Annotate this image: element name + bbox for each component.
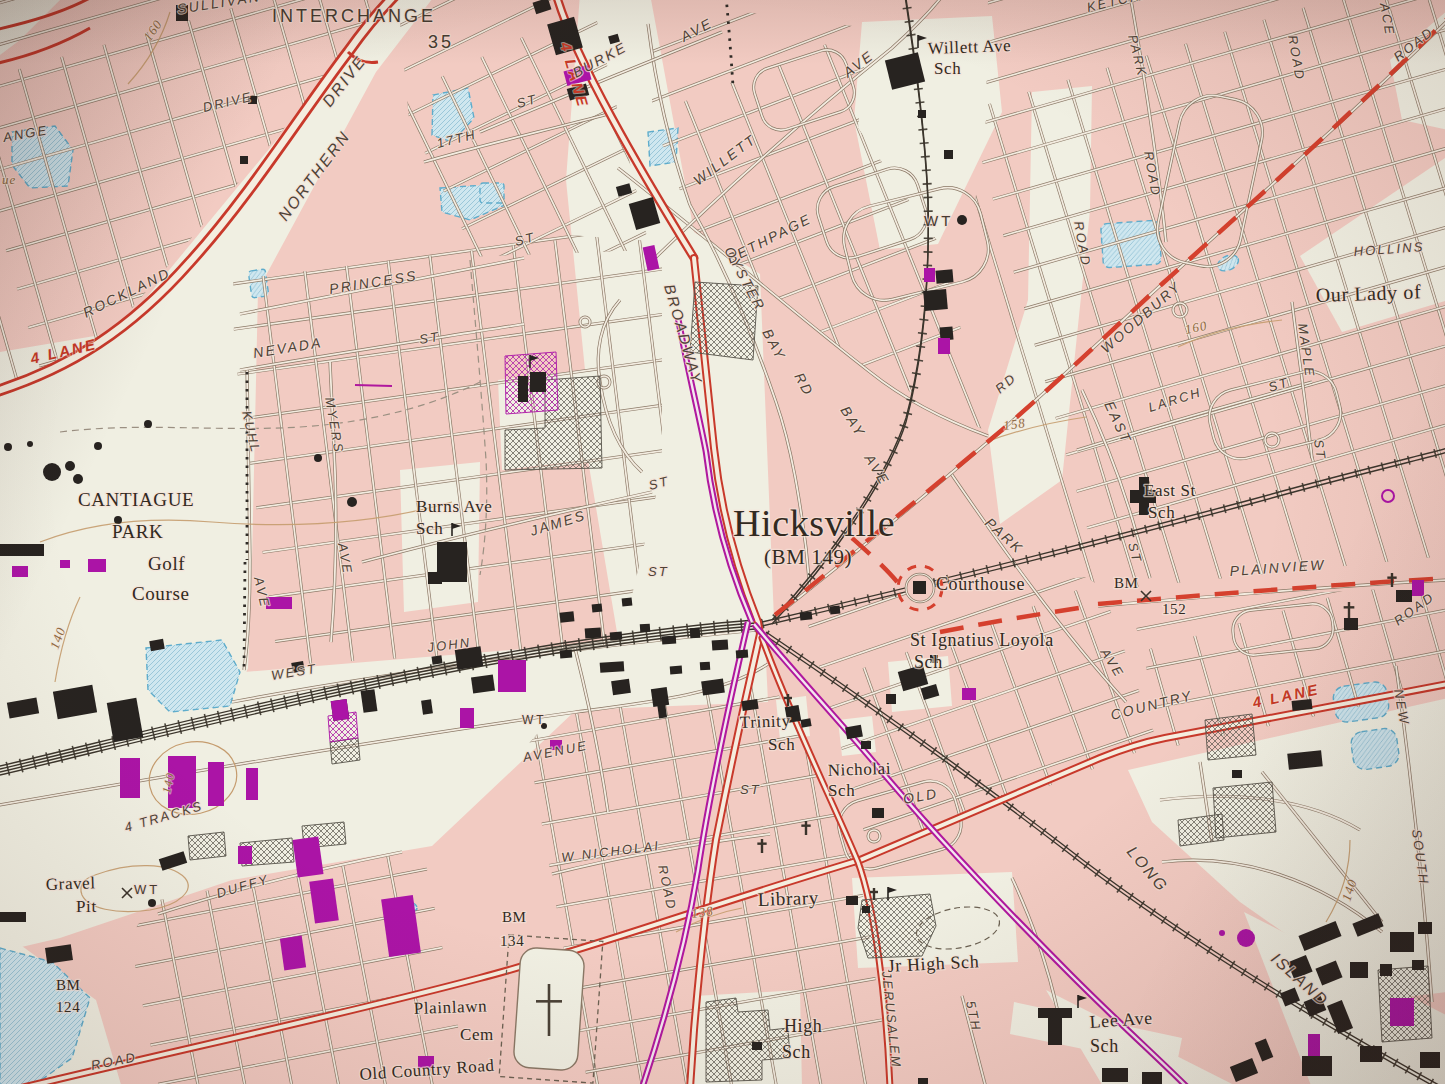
- map-label: Courthouse: [936, 574, 1025, 594]
- building: [1380, 964, 1392, 976]
- map-label: 134: [500, 933, 524, 949]
- building-photorevised: [1308, 1034, 1320, 1056]
- building: [1390, 932, 1414, 952]
- map-label: Sch: [914, 652, 943, 672]
- map-label: BM: [1114, 575, 1139, 591]
- building-photorevised: [498, 660, 526, 692]
- building: [700, 662, 711, 671]
- building: [1396, 590, 1412, 602]
- map-label: WT: [924, 212, 953, 229]
- building: [1418, 922, 1432, 934]
- building: [585, 627, 602, 638]
- topo-map-hicksville: SULLIVANINTERCHANGE35160DRIVEANGEueNORTH…: [0, 0, 1445, 1084]
- courthouse-building: [913, 581, 926, 594]
- building: [428, 572, 442, 584]
- building: [690, 628, 701, 639]
- building-photorevised: [88, 559, 106, 572]
- building-photorevised: [292, 836, 323, 877]
- map-label: 152: [1162, 601, 1186, 617]
- map-label: PARK: [112, 521, 163, 542]
- building: [1102, 1068, 1128, 1082]
- building: [923, 289, 948, 311]
- building-photorevised: [938, 338, 950, 354]
- large-building-hatched: [330, 738, 360, 764]
- building: [1350, 962, 1368, 978]
- building: [800, 611, 813, 620]
- pond: [1350, 727, 1401, 771]
- map-label: Plainlawn: [413, 996, 487, 1018]
- building: [640, 624, 651, 633]
- map-label: Cem: [460, 1025, 494, 1044]
- large-building-hatched: [858, 894, 936, 958]
- map-label: BM: [502, 909, 527, 925]
- building: [830, 605, 841, 614]
- building: [611, 679, 631, 695]
- building: [1360, 1046, 1382, 1062]
- building: [600, 661, 625, 673]
- vegetation-dot: [65, 461, 75, 471]
- pond: [146, 640, 240, 712]
- map-label: Willett Ave: [927, 36, 1011, 58]
- building-photorevised: [1390, 998, 1414, 1026]
- vegetation-dot: [347, 497, 357, 507]
- building: [944, 150, 953, 159]
- map-label: Library: [757, 887, 819, 910]
- map-label: East St: [1144, 481, 1196, 500]
- map-label: 158: [1002, 415, 1026, 433]
- map-label: Sch: [1090, 1036, 1119, 1056]
- map-viewport: SULLIVANINTERCHANGE35160DRIVEANGEueNORTH…: [0, 0, 1445, 1084]
- building: [1232, 770, 1242, 778]
- building-photorevised: [246, 768, 258, 800]
- building: [670, 666, 683, 675]
- building: [752, 1042, 762, 1050]
- map-label: 35: [428, 32, 454, 52]
- building-photorevised: [12, 566, 28, 577]
- map-label: INTERCHANGE: [272, 6, 436, 26]
- building: [736, 650, 749, 659]
- map-label: CANTIAGUE: [78, 489, 194, 510]
- vegetation-dot: [4, 443, 12, 451]
- vegetation-dot: [144, 420, 152, 428]
- tank-purple: [1219, 930, 1225, 936]
- building: [421, 699, 433, 714]
- map-label: St Ignatius Loyola: [910, 630, 1054, 650]
- building: [1142, 1072, 1162, 1084]
- map-label: Burns Ave: [416, 497, 492, 516]
- map-label: ST: [1311, 438, 1329, 461]
- water-tank-dot: [957, 215, 967, 225]
- large-building-hatched: [1205, 714, 1256, 760]
- building: [431, 655, 442, 664]
- building: [861, 741, 871, 749]
- map-label: High: [784, 1016, 822, 1036]
- building: [1412, 960, 1424, 970]
- map-label: Gravel: [45, 873, 95, 894]
- building: [800, 718, 811, 728]
- large-building-hatched: [188, 832, 226, 860]
- building: [471, 675, 495, 694]
- building: [560, 611, 575, 622]
- vegetation-dot: [73, 474, 83, 484]
- building-photorevised: [460, 708, 474, 728]
- building: [592, 603, 603, 612]
- map-label: (BM 149): [764, 545, 852, 569]
- map-label: Sch: [782, 1042, 811, 1062]
- map-label: WT: [522, 713, 547, 727]
- map-label: WT: [134, 882, 160, 897]
- map-label: 138: [690, 903, 714, 921]
- vegetation-dot: [43, 463, 61, 481]
- building: [560, 650, 573, 659]
- map-label: Trinity: [739, 711, 790, 732]
- map-label: ue: [2, 172, 16, 187]
- map-label: Sch: [934, 59, 961, 78]
- map-label: 124: [56, 999, 80, 1015]
- map-label: Course: [132, 583, 189, 604]
- building: [1420, 1052, 1440, 1068]
- map-label: BM: [56, 977, 81, 993]
- building: [240, 156, 248, 164]
- vegetation-dot: [314, 454, 322, 462]
- map-label: Sch: [1148, 503, 1175, 522]
- building: [1038, 1008, 1072, 1018]
- vegetation-dot: [94, 442, 102, 450]
- water-tank-dot: [148, 899, 156, 907]
- building: [918, 1078, 928, 1084]
- map-label: ST: [648, 564, 669, 579]
- building: [872, 808, 884, 818]
- building: [935, 269, 953, 283]
- map-label: Pit: [76, 897, 97, 916]
- building-photorevised: [962, 688, 976, 700]
- map-label: ST: [740, 782, 761, 797]
- building: [846, 896, 858, 905]
- building: [918, 110, 926, 118]
- vegetation-dot: [27, 441, 33, 447]
- building: [862, 906, 870, 913]
- map-label: Sch: [768, 735, 795, 754]
- map-label: Sch: [828, 781, 855, 800]
- map-label: Hicksville: [733, 502, 895, 544]
- building-photorevised: [331, 699, 350, 721]
- building-photorevised: [208, 762, 224, 806]
- building-photorevised: [238, 846, 252, 864]
- building: [886, 694, 896, 704]
- building: [610, 632, 623, 641]
- building: [1302, 1056, 1332, 1076]
- building: [1048, 1017, 1062, 1045]
- building: [1344, 618, 1358, 630]
- map-label: Golf: [148, 553, 185, 574]
- building-photorevised: [60, 560, 70, 568]
- building: [0, 544, 44, 556]
- large-building-hatched: [1178, 814, 1224, 846]
- building-photorevised: [924, 268, 935, 282]
- building-photorevised: [280, 936, 306, 971]
- purple-line: [355, 385, 392, 386]
- building: [662, 636, 677, 645]
- building: [518, 376, 528, 402]
- building: [0, 912, 26, 922]
- building-photorevised: [120, 758, 140, 798]
- building: [622, 597, 633, 606]
- tank-purple: [1237, 929, 1255, 947]
- map-label: Sch: [416, 519, 443, 538]
- building: [530, 372, 546, 392]
- map-label: Nicholai: [827, 759, 891, 780]
- building: [712, 639, 729, 650]
